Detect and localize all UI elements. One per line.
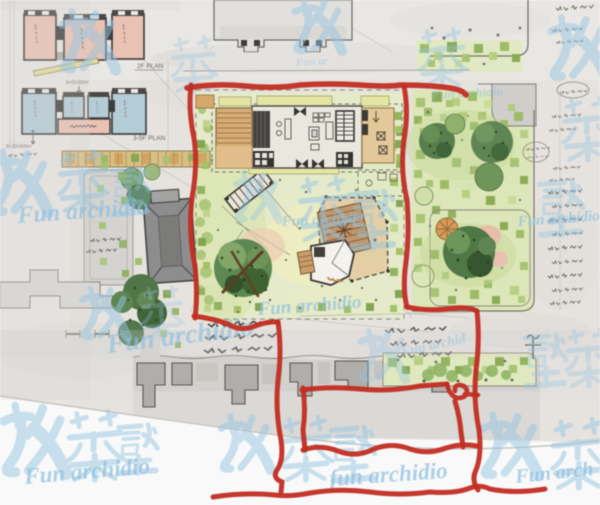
svg-text:Fun ar: Fun ar — [295, 55, 329, 69]
svg-text:3-5F PLAN: 3-5F PLAN — [133, 135, 165, 142]
svg-text:2F PLAN: 2F PLAN — [137, 63, 164, 70]
